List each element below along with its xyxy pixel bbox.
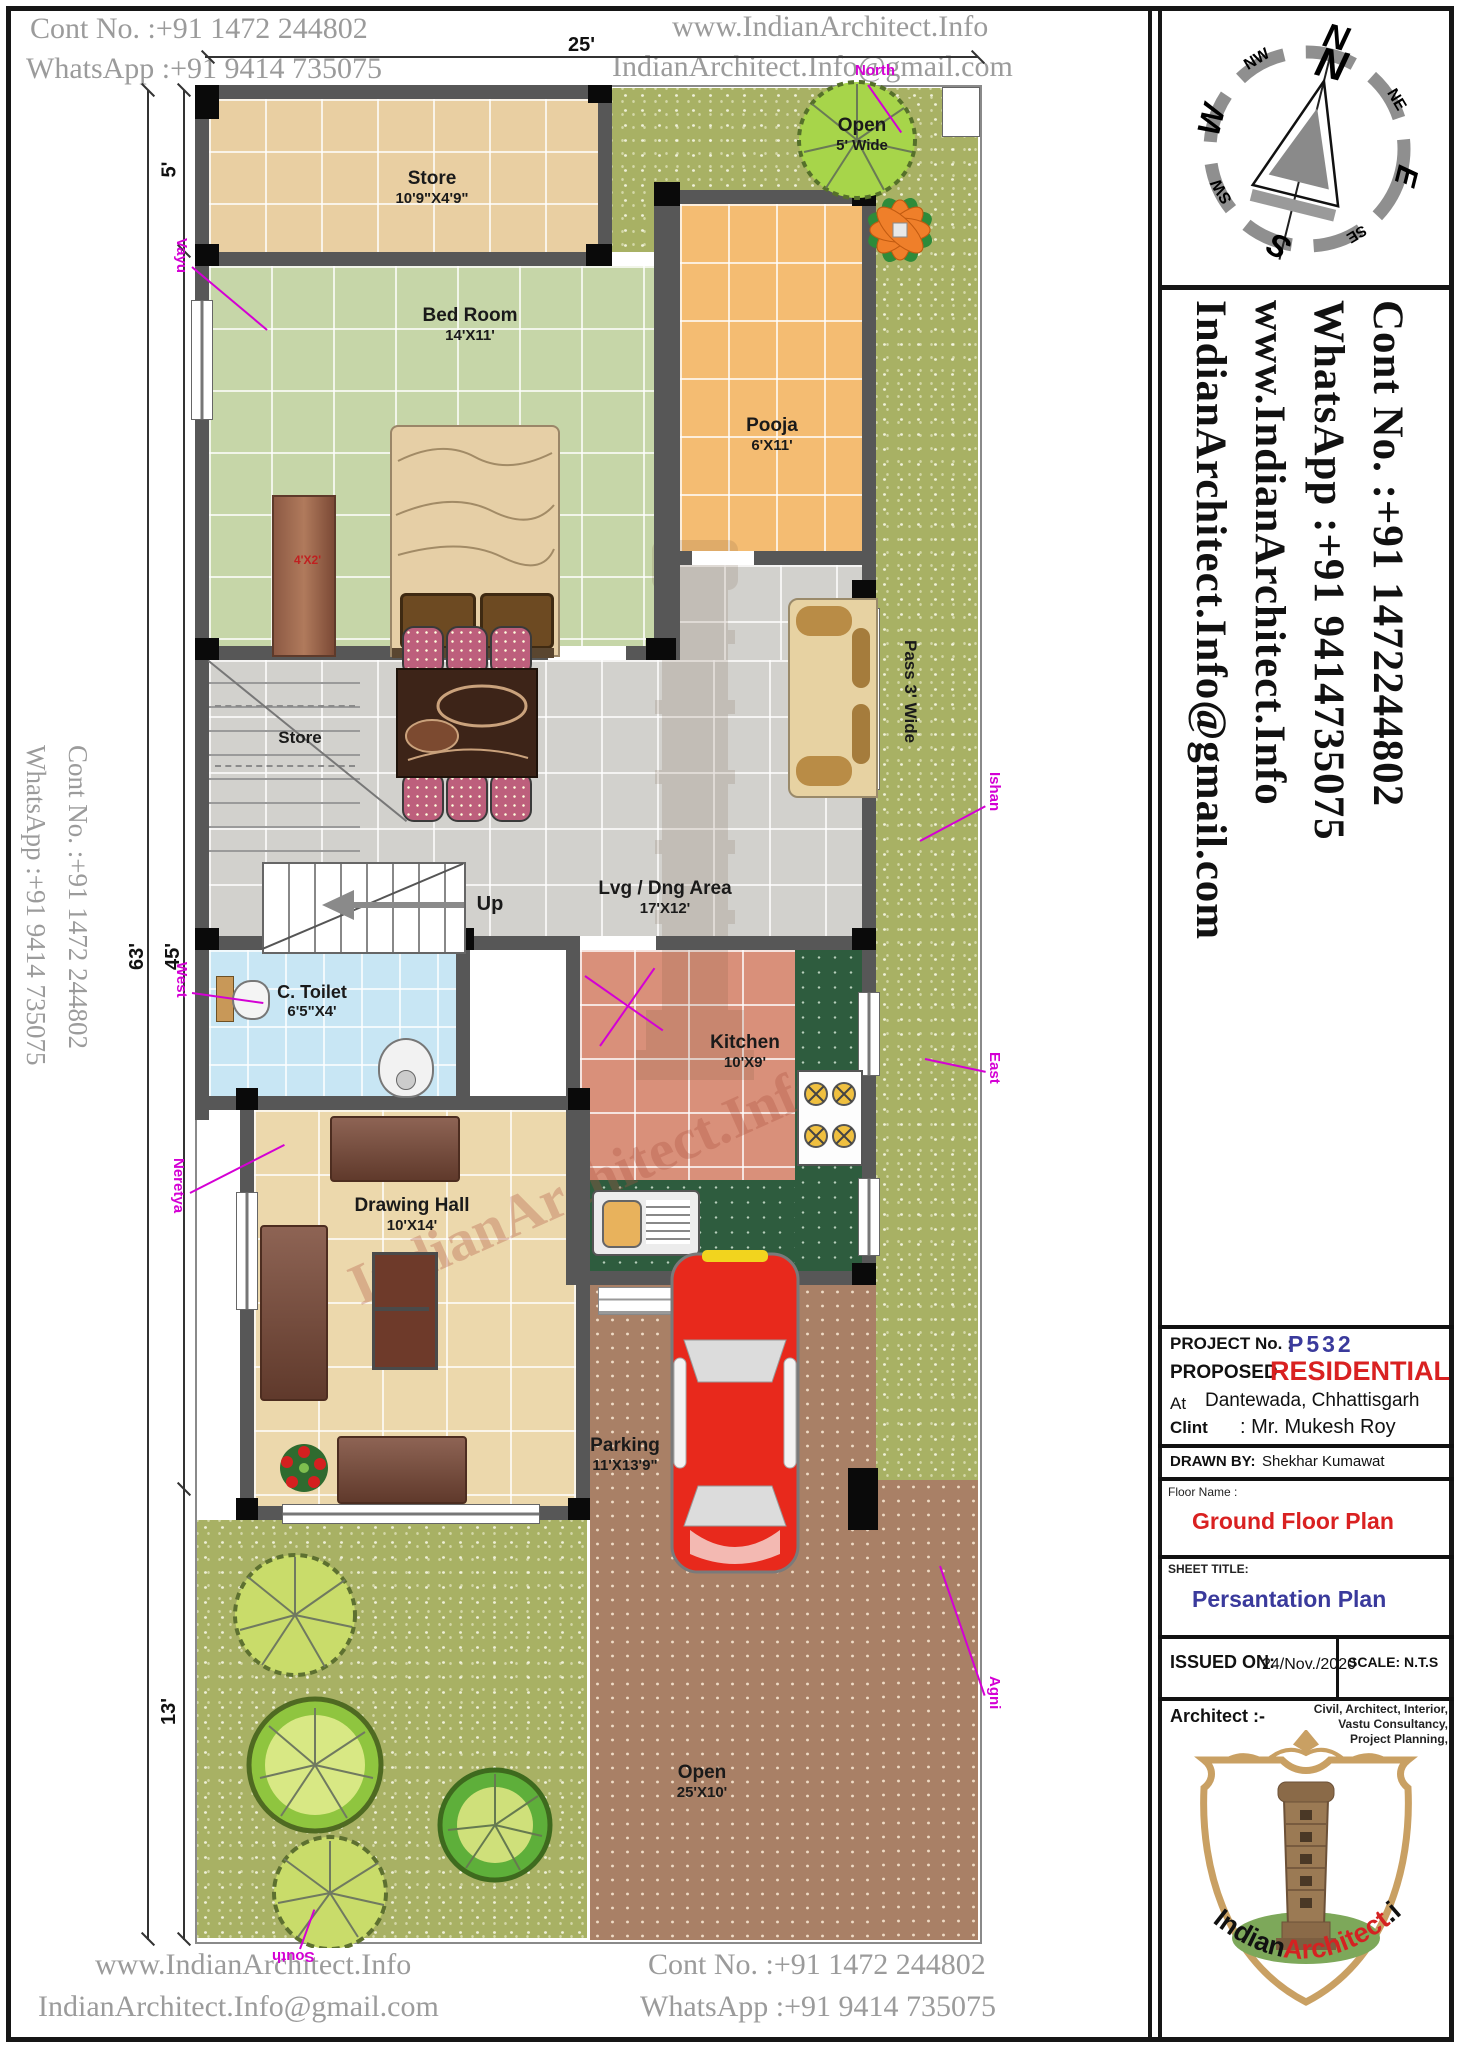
room-label-understairs-store: Store	[278, 728, 321, 748]
wardrobe: 4'X2'	[272, 495, 336, 657]
service-item: Civil, Architect, Interior,	[1290, 1702, 1448, 1717]
column	[236, 1498, 258, 1520]
client-value: : Mr. Mukesh Roy	[1240, 1416, 1396, 1439]
sofa-cushion	[852, 628, 870, 688]
sofa-long	[330, 1116, 460, 1182]
direction-ishan: Ishan	[986, 772, 1003, 811]
sofa-cushion	[852, 704, 870, 764]
bush	[250, 1828, 410, 1948]
basin-drain	[396, 1070, 416, 1090]
sofa-living	[788, 598, 878, 798]
stove	[797, 1070, 863, 1166]
titleblock-vline	[1336, 1639, 1339, 1697]
titleblock-line	[1158, 1477, 1454, 1481]
panel-contact-3: www.IndianArchitect.Info	[1235, 300, 1294, 1315]
flower-pot	[276, 1440, 332, 1496]
sink-basin	[602, 1200, 642, 1248]
window	[236, 1192, 258, 1310]
wall	[576, 1110, 590, 1520]
column	[195, 244, 219, 266]
corner-block	[942, 87, 980, 137]
proposed-label: PROPOSED	[1170, 1362, 1278, 1384]
stairs-dashed-line	[215, 705, 355, 707]
dining-table	[396, 668, 538, 778]
dim-width: 25'	[568, 34, 595, 57]
header-contact-1: Cont No. :+91 1472 244802	[30, 12, 368, 46]
wall	[654, 190, 680, 660]
sofa-side	[260, 1225, 328, 1401]
footer-contact-2: WhatsApp :+91 9414 735075	[640, 1990, 996, 2024]
panel-contact-block: Cont No. :+91 1472244802 WhatsApp :+91 9…	[1176, 300, 1412, 1315]
left-margin-contact-2: WhatsApp :+91 9414 735075	[20, 745, 51, 1065]
drain-board	[646, 1200, 690, 1244]
tower-watermark	[600, 520, 790, 1080]
sofa-cushion	[796, 756, 852, 786]
direction-south: South	[272, 1948, 315, 1965]
column	[852, 928, 876, 950]
flower	[840, 170, 960, 290]
door-opening	[580, 936, 656, 950]
dim-store-height: 5'	[158, 162, 181, 178]
floor-name-label: Floor Name :	[1168, 1485, 1237, 1499]
stairs-dashed-line	[215, 765, 355, 767]
column	[568, 1498, 590, 1520]
left-margin-contact-1: Cont No. :+91 1472 244802	[62, 745, 93, 1049]
room-label-open-top: Open 5' Wide	[836, 115, 888, 154]
direction-east: East	[986, 1052, 1003, 1084]
room-label-pass: Pass 3' Wide	[900, 640, 920, 743]
wall	[195, 252, 612, 266]
window-sill	[282, 1504, 540, 1524]
titleblock-line	[1158, 1444, 1454, 1448]
room-label-open-bottom: Open 25'X10'	[677, 1762, 728, 1801]
pooja-floor	[680, 204, 862, 551]
proposed-value: RESIDENTIAL	[1270, 1356, 1450, 1387]
at-label: At	[1170, 1394, 1186, 1414]
wall	[195, 85, 612, 99]
titleblock-line	[1158, 1325, 1454, 1329]
compass: N N NE E SE S SW W NW	[1162, 11, 1452, 283]
project-no-value: P532	[1288, 1331, 1354, 1358]
room-label-store: Store 10'9"X4'9"	[395, 168, 468, 207]
scale-value: SCALE: N.T.S	[1348, 1654, 1438, 1670]
room-label-drawing-hall: Drawing Hall 10'X14'	[354, 1195, 469, 1234]
wardrobe-size: 4'X2'	[294, 553, 321, 567]
company-logo: IndianArchitect.info	[1178, 1730, 1434, 2035]
column	[236, 1088, 258, 1110]
table-shelf	[375, 1307, 429, 1311]
column	[654, 182, 680, 206]
pass-strip	[876, 97, 978, 1480]
dim-line-63	[147, 90, 149, 1940]
window	[191, 300, 213, 420]
column	[586, 244, 612, 266]
car	[660, 1248, 810, 1578]
wall	[470, 936, 876, 950]
issued-on-label: ISSUED ON:	[1170, 1652, 1275, 1673]
open-ground	[876, 1480, 978, 1940]
sheet-title-value: Persantation Plan	[1192, 1586, 1386, 1613]
titleblock-line	[1158, 1635, 1454, 1639]
at-value: Dantewada, Chhattisgarh	[1205, 1390, 1419, 1412]
washbasin	[378, 1038, 434, 1098]
window	[858, 1178, 880, 1256]
column	[852, 1263, 876, 1285]
floor-plan-sheet: Cont No. :+91 1472 244802 WhatsApp :+91 …	[0, 0, 1460, 2048]
column	[646, 638, 676, 660]
header-site: www.IndianArchitect.Info	[672, 10, 988, 44]
room-label-bedroom: Bed Room 14'X11'	[423, 305, 518, 344]
window	[858, 992, 880, 1076]
bush	[220, 1545, 370, 1685]
panel-divider	[1158, 6, 1162, 2042]
issued-on-value: 24/Nov./2020	[1262, 1656, 1356, 1674]
column	[195, 638, 219, 660]
column	[568, 1088, 590, 1110]
wall	[195, 85, 209, 1120]
wall	[456, 936, 470, 1110]
direction-vayu: Vayu	[173, 238, 190, 273]
project-no-label: PROJECT No. :	[1170, 1334, 1293, 1354]
direction-west: West	[173, 962, 190, 998]
kitchen-sink	[592, 1190, 700, 1256]
architect-label: Architect :-	[1170, 1706, 1265, 1727]
center-table	[372, 1252, 438, 1370]
sheet-title-label: SHEET TITLE:	[1168, 1562, 1249, 1576]
floor-name-value: Ground Floor Plan	[1192, 1508, 1394, 1535]
up-arrow-head	[322, 890, 354, 920]
footer-contact-1: Cont No. :+91 1472 244802	[648, 1948, 986, 1982]
client-label: Clint	[1170, 1418, 1208, 1438]
up-label: Up	[477, 893, 504, 916]
wall	[598, 85, 612, 266]
panel-contact-4: IndianArchitect.Info@gmail.com	[1176, 300, 1235, 1315]
room-label-pooja: Pooja 6'X11'	[746, 415, 798, 454]
dim-line-inner	[183, 90, 185, 1940]
sofa-cushion	[796, 606, 852, 636]
room-label-kitchen: Kitchen 10'X9'	[710, 1032, 780, 1071]
room-label-living: Lvg / Dng Area 17'X12'	[598, 878, 731, 917]
compass-box: N N NE E SE S SW W NW	[1162, 11, 1452, 290]
dim-total-height: 63'	[126, 943, 149, 970]
direction-neretya: Neretya	[170, 1158, 187, 1213]
sofa-long	[337, 1436, 467, 1504]
panel-contact-1: Cont No. :+91 1472244802	[1353, 300, 1412, 1315]
direction-agni: Agni	[986, 1676, 1003, 1709]
column	[195, 85, 219, 119]
column	[588, 85, 612, 103]
bush	[235, 1690, 395, 1840]
panel-contact-2: WhatsApp :+91 9414735075	[1294, 300, 1353, 1315]
dim-garden-height: 13'	[158, 1698, 181, 1725]
drawn-by-value: Shekhar Kumawat	[1262, 1453, 1385, 1470]
footer-site: www.IndianArchitect.Info	[95, 1948, 411, 1982]
drawn-by-label: DRAWN BY:	[1170, 1453, 1256, 1470]
footer-email: IndianArchitect.Info@gmail.com	[38, 1990, 439, 2024]
column	[195, 928, 219, 950]
wall	[240, 1110, 254, 1520]
door-opening	[692, 551, 754, 565]
room-label-toilet: C. Toilet 6'5"X4'	[277, 982, 347, 1020]
direction-north: North	[855, 62, 895, 79]
titleblock-line	[1158, 1555, 1454, 1559]
gate-post	[848, 1468, 878, 1530]
room-label-parking: Parking 11'X13'9"	[590, 1435, 660, 1474]
up-arrow-shaft	[352, 902, 464, 908]
panel-divider	[1148, 6, 1152, 2042]
bush	[430, 1760, 560, 1890]
titleblock-line	[1158, 1697, 1454, 1701]
